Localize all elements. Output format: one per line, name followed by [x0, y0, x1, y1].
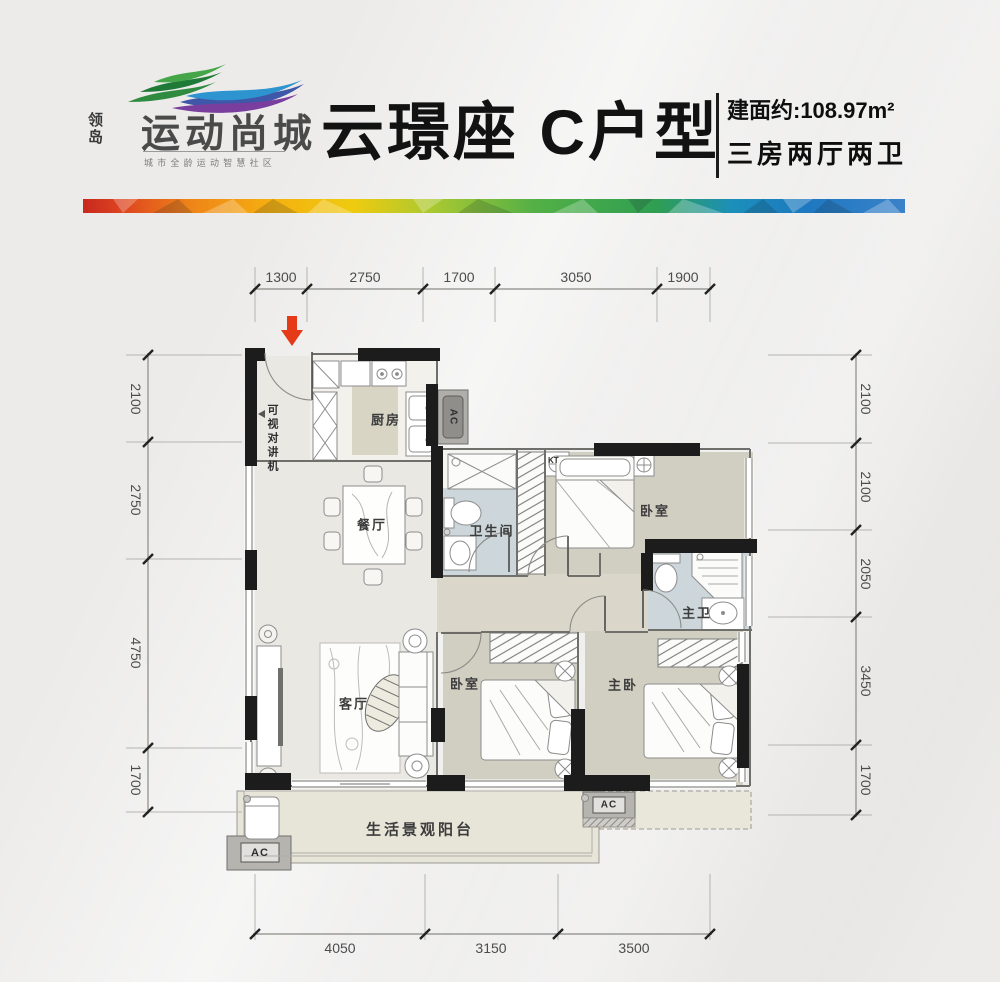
dim-bottom-1: 3150 [475, 940, 506, 956]
room-label-kitchen: 厨房 [371, 410, 401, 429]
ac-label-kitchen: AC [448, 409, 459, 425]
dim-right-4: 1700 [858, 764, 874, 795]
dim-top-4: 1900 [667, 269, 698, 285]
ac-label-right: AC [601, 800, 617, 811]
room-label-bedroom-mid: 卧室 [450, 674, 480, 693]
dim-bottom-0: 4050 [324, 940, 355, 956]
dim-top-0: 1300 [265, 269, 296, 285]
dim-top-1: 2750 [349, 269, 380, 285]
dim-top-2: 1700 [443, 269, 474, 285]
dim-left-3: 1700 [128, 764, 144, 795]
intercom-label: 可视对讲机 [264, 404, 280, 474]
flyer-page: { "brand": { "name_vertical": "领岛", "nam… [0, 0, 1000, 982]
room-label-balcony: 生活景观阳台 [366, 819, 474, 840]
dim-bottom-2: 3500 [618, 940, 649, 956]
entrance-arrow-icon [281, 316, 303, 346]
dim-top-3: 3050 [560, 269, 591, 285]
dim-left-0: 2100 [128, 383, 144, 414]
dim-left-1: 2750 [128, 484, 144, 515]
room-label-master-bedroom: 主卧 [608, 675, 638, 694]
dim-right-0: 2100 [858, 383, 874, 414]
dim-right-3: 3450 [858, 665, 874, 696]
dim-left-2: 4750 [128, 637, 144, 668]
room-label-living: 客厅 [339, 694, 369, 713]
dim-right-1: 2100 [858, 471, 874, 502]
ac-label-balcony: AC [251, 847, 269, 859]
room-label-master-bathroom: 主卫 [682, 603, 712, 622]
room-label-bathroom: 卫生间 [469, 521, 514, 540]
floorplan-drawing: ) [0, 0, 1000, 982]
kt-label: KT [548, 456, 559, 465]
dim-right-2: 2050 [858, 558, 874, 589]
room-label-dining: 餐厅 [357, 515, 387, 534]
room-label-bedroom-top: 卧室 [640, 501, 670, 520]
